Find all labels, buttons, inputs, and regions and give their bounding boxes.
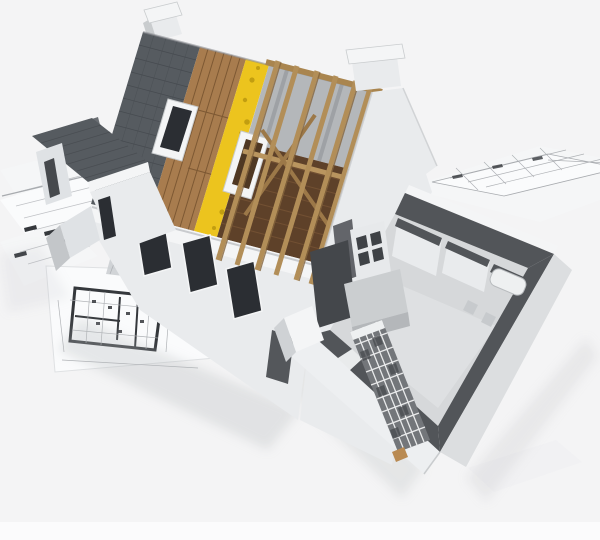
backdrop-bottom-strip [0, 522, 600, 540]
house-construction-3d-render [0, 0, 600, 540]
render-stage [0, 0, 600, 540]
